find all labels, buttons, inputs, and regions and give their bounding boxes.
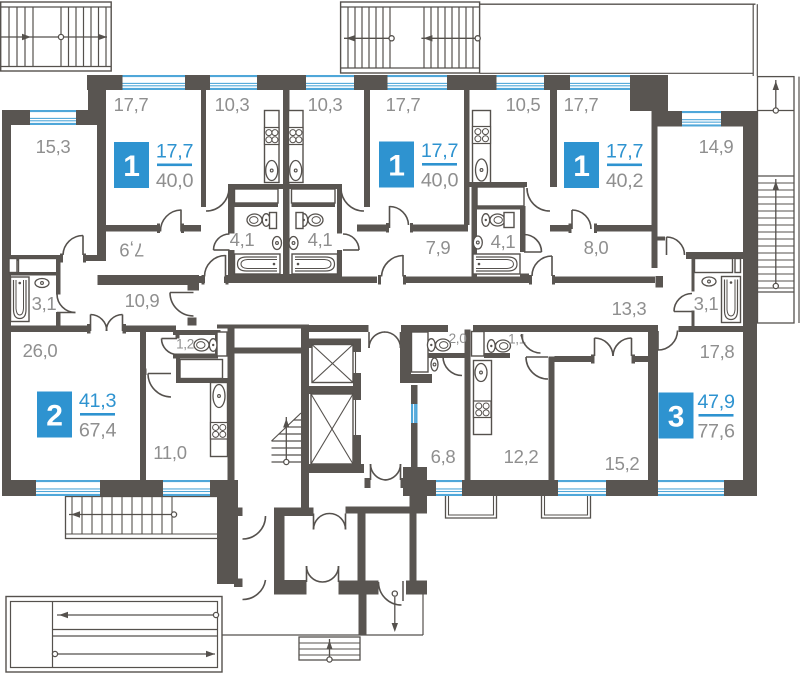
svg-text:2: 2: [46, 400, 62, 433]
svg-text:3,1: 3,1: [32, 293, 57, 314]
svg-text:1: 1: [573, 150, 589, 183]
svg-text:1: 1: [388, 150, 404, 183]
svg-text:17,7: 17,7: [421, 140, 458, 162]
svg-text:8,0: 8,0: [584, 237, 609, 258]
svg-text:17,7: 17,7: [156, 141, 193, 163]
svg-text:3,1: 3,1: [694, 293, 719, 314]
svg-text:47,9: 47,9: [697, 391, 735, 413]
svg-text:13,3: 13,3: [612, 298, 647, 319]
svg-text:17,7: 17,7: [564, 94, 599, 115]
svg-text:3: 3: [668, 401, 684, 434]
svg-text:4,1: 4,1: [308, 229, 333, 250]
svg-text:40,0: 40,0: [421, 170, 459, 192]
svg-text:15,3: 15,3: [36, 136, 71, 157]
svg-text:26,0: 26,0: [23, 340, 58, 361]
svg-text:4,1: 4,1: [230, 229, 255, 250]
svg-text:2,0: 2,0: [449, 331, 467, 346]
svg-text:41,3: 41,3: [79, 390, 117, 412]
svg-text:17,7: 17,7: [606, 141, 643, 163]
svg-text:14,9: 14,9: [699, 136, 734, 157]
svg-text:1: 1: [123, 150, 139, 183]
svg-text:17,8: 17,8: [700, 341, 735, 362]
svg-text:4,1: 4,1: [491, 231, 516, 252]
svg-text:10,3: 10,3: [215, 94, 250, 115]
svg-text:40,0: 40,0: [156, 170, 194, 192]
svg-text:17,7: 17,7: [114, 94, 149, 115]
svg-text:77,6: 77,6: [697, 421, 735, 443]
svg-text:10,5: 10,5: [506, 94, 541, 115]
svg-text:12,2: 12,2: [504, 446, 539, 467]
svg-text:40,2: 40,2: [606, 170, 643, 192]
svg-text:11,0: 11,0: [153, 442, 186, 463]
svg-text:17,7: 17,7: [386, 94, 421, 115]
svg-text:10,3: 10,3: [308, 94, 343, 115]
svg-text:10,9: 10,9: [125, 290, 160, 311]
svg-text:67,4: 67,4: [79, 420, 117, 442]
svg-text:15,2: 15,2: [605, 453, 640, 474]
svg-text:7,9: 7,9: [426, 237, 451, 258]
svg-text:1,2: 1,2: [176, 337, 194, 352]
svg-text:6,8: 6,8: [431, 446, 456, 467]
svg-text:1,1: 1,1: [508, 332, 526, 347]
svg-text:7,9: 7,9: [120, 240, 145, 261]
